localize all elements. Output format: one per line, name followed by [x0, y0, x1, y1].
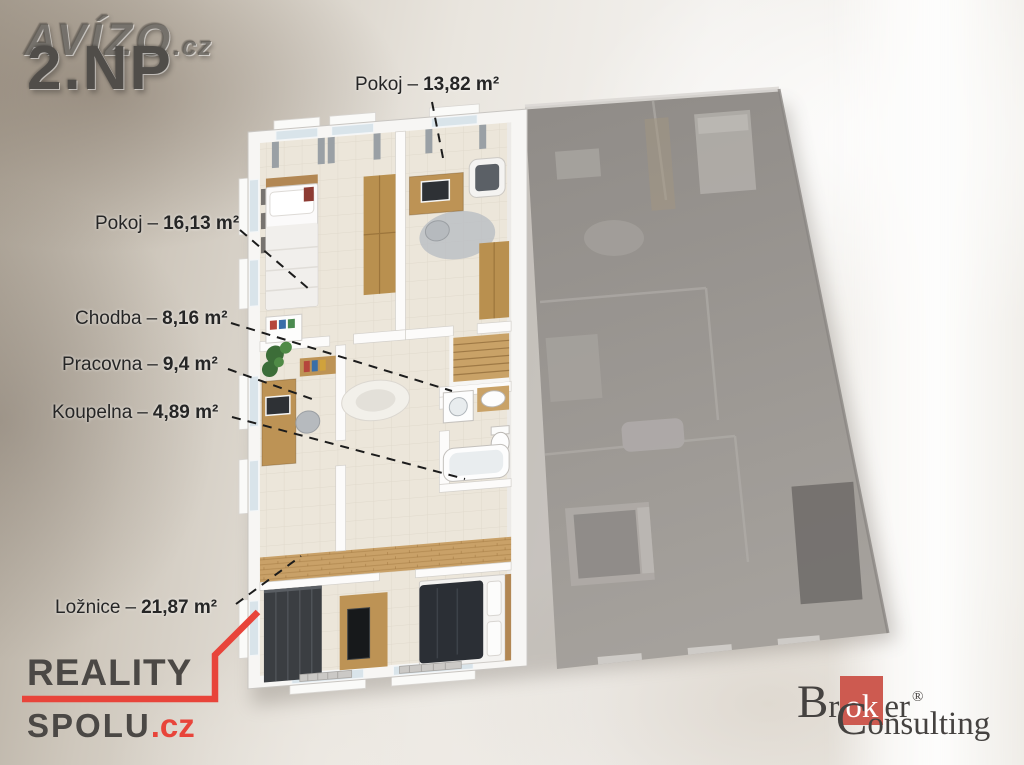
avizo-tld: .cz	[173, 31, 212, 61]
floorplan-render	[0, 0, 1024, 765]
room-area: 8,16 m²	[162, 308, 227, 329]
staircase	[451, 331, 509, 384]
reality-spolu-logo-line2: SPOLU.cz	[27, 707, 195, 745]
separator: –	[126, 597, 137, 618]
real-estate-floorplan-image: AVÍZO.cz 2.NP Pokoj–13,82 m² Pokoj–16,13…	[0, 0, 1024, 765]
room-name: Chodba	[75, 308, 142, 329]
separator: –	[137, 402, 148, 423]
room-label-koupelna: Koupelna–4,89 m²	[52, 402, 218, 425]
colored-unit	[239, 100, 527, 699]
room-name: Pracovna	[62, 354, 142, 375]
separator: –	[147, 308, 158, 329]
room-area: 4,89 m²	[153, 402, 218, 423]
room-area: 21,87 m²	[141, 597, 217, 618]
room-label-pokoj-left: Pokoj–16,13 m²	[95, 213, 239, 236]
room-name: Pokoj	[355, 74, 403, 95]
room-area: 13,82 m²	[423, 74, 499, 95]
separator: –	[147, 354, 158, 375]
separator: –	[148, 213, 159, 234]
registered-mark: ®	[912, 689, 923, 705]
floor-label: 2.NP	[27, 33, 173, 104]
room-name: Pokoj	[95, 213, 143, 234]
consulting-cap: C	[836, 693, 867, 745]
room-label-pracovna: Pracovna–9,4 m²	[62, 354, 218, 377]
room-area: 16,13 m²	[163, 213, 239, 234]
room-label-chodba: Chodba–8,16 m²	[75, 308, 228, 331]
reality-spolu-tld: .cz	[151, 707, 195, 744]
reality-spolu-logo-line1: REALITY	[27, 652, 192, 694]
gray-neighbour-unit	[525, 89, 888, 669]
room-name: Ložnice	[55, 597, 121, 618]
consulting-rest: onsulting	[867, 706, 990, 742]
room-label-pokoj-top: Pokoj–13,82 m²	[355, 74, 499, 97]
room-label-loznice: Ložnice–21,87 m²	[55, 597, 217, 620]
broker-consulting-logo-line2: Consulting	[836, 706, 990, 743]
broker-cap: B	[797, 676, 828, 728]
room-name: Koupelna	[52, 402, 132, 423]
separator: –	[408, 74, 419, 95]
reality-spolu-word: SPOLU	[27, 707, 151, 744]
room-area: 9,4 m²	[163, 354, 218, 375]
